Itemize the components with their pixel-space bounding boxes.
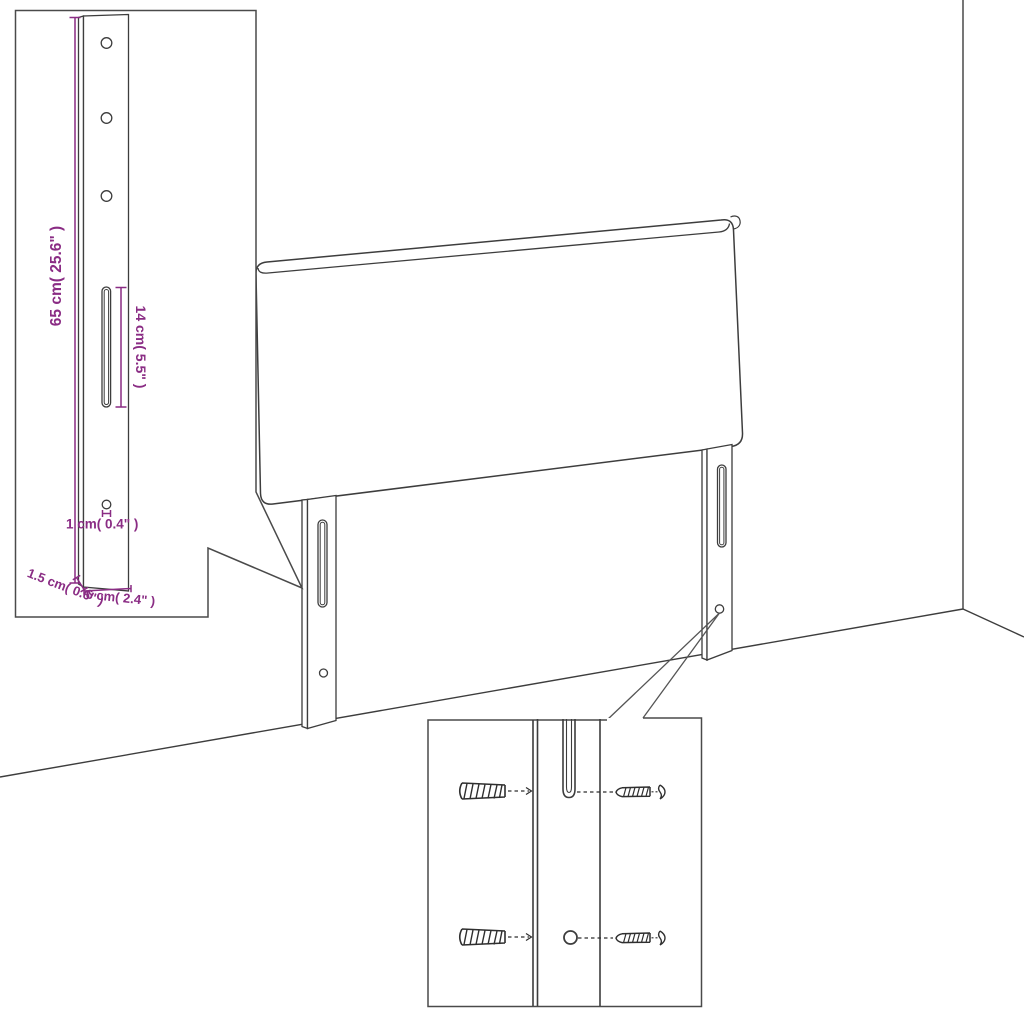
diagram-canvas: 65 cm( 25.6" ) 14 cm( 5.5" ) 1 cm( 0.4" … — [0, 0, 1024, 1024]
hole-diameter-label: 1 cm( 0.4" ) — [66, 517, 138, 532]
right-leg — [702, 445, 732, 661]
headboard-diagram: 65 cm( 25.6" ) 14 cm( 5.5" ) 1 cm( 0.4" … — [0, 0, 1024, 1024]
hardware-detail-inset — [428, 613, 720, 1007]
leg-height-label: 65 cm( 25.6" ) — [48, 226, 65, 326]
bracket-side — [79, 16, 84, 587]
left-leg-side — [302, 500, 308, 729]
left-leg-face — [308, 496, 337, 729]
hardware-inset-background — [428, 718, 702, 1007]
slot-length-label: 14 cm( 5.5" ) — [133, 306, 149, 389]
hardware-callout-lines — [607, 613, 720, 720]
floor-line-right — [963, 609, 1024, 637]
headboard-panel — [256, 216, 743, 504]
left-leg — [302, 496, 336, 729]
panel-outline — [256, 220, 743, 504]
